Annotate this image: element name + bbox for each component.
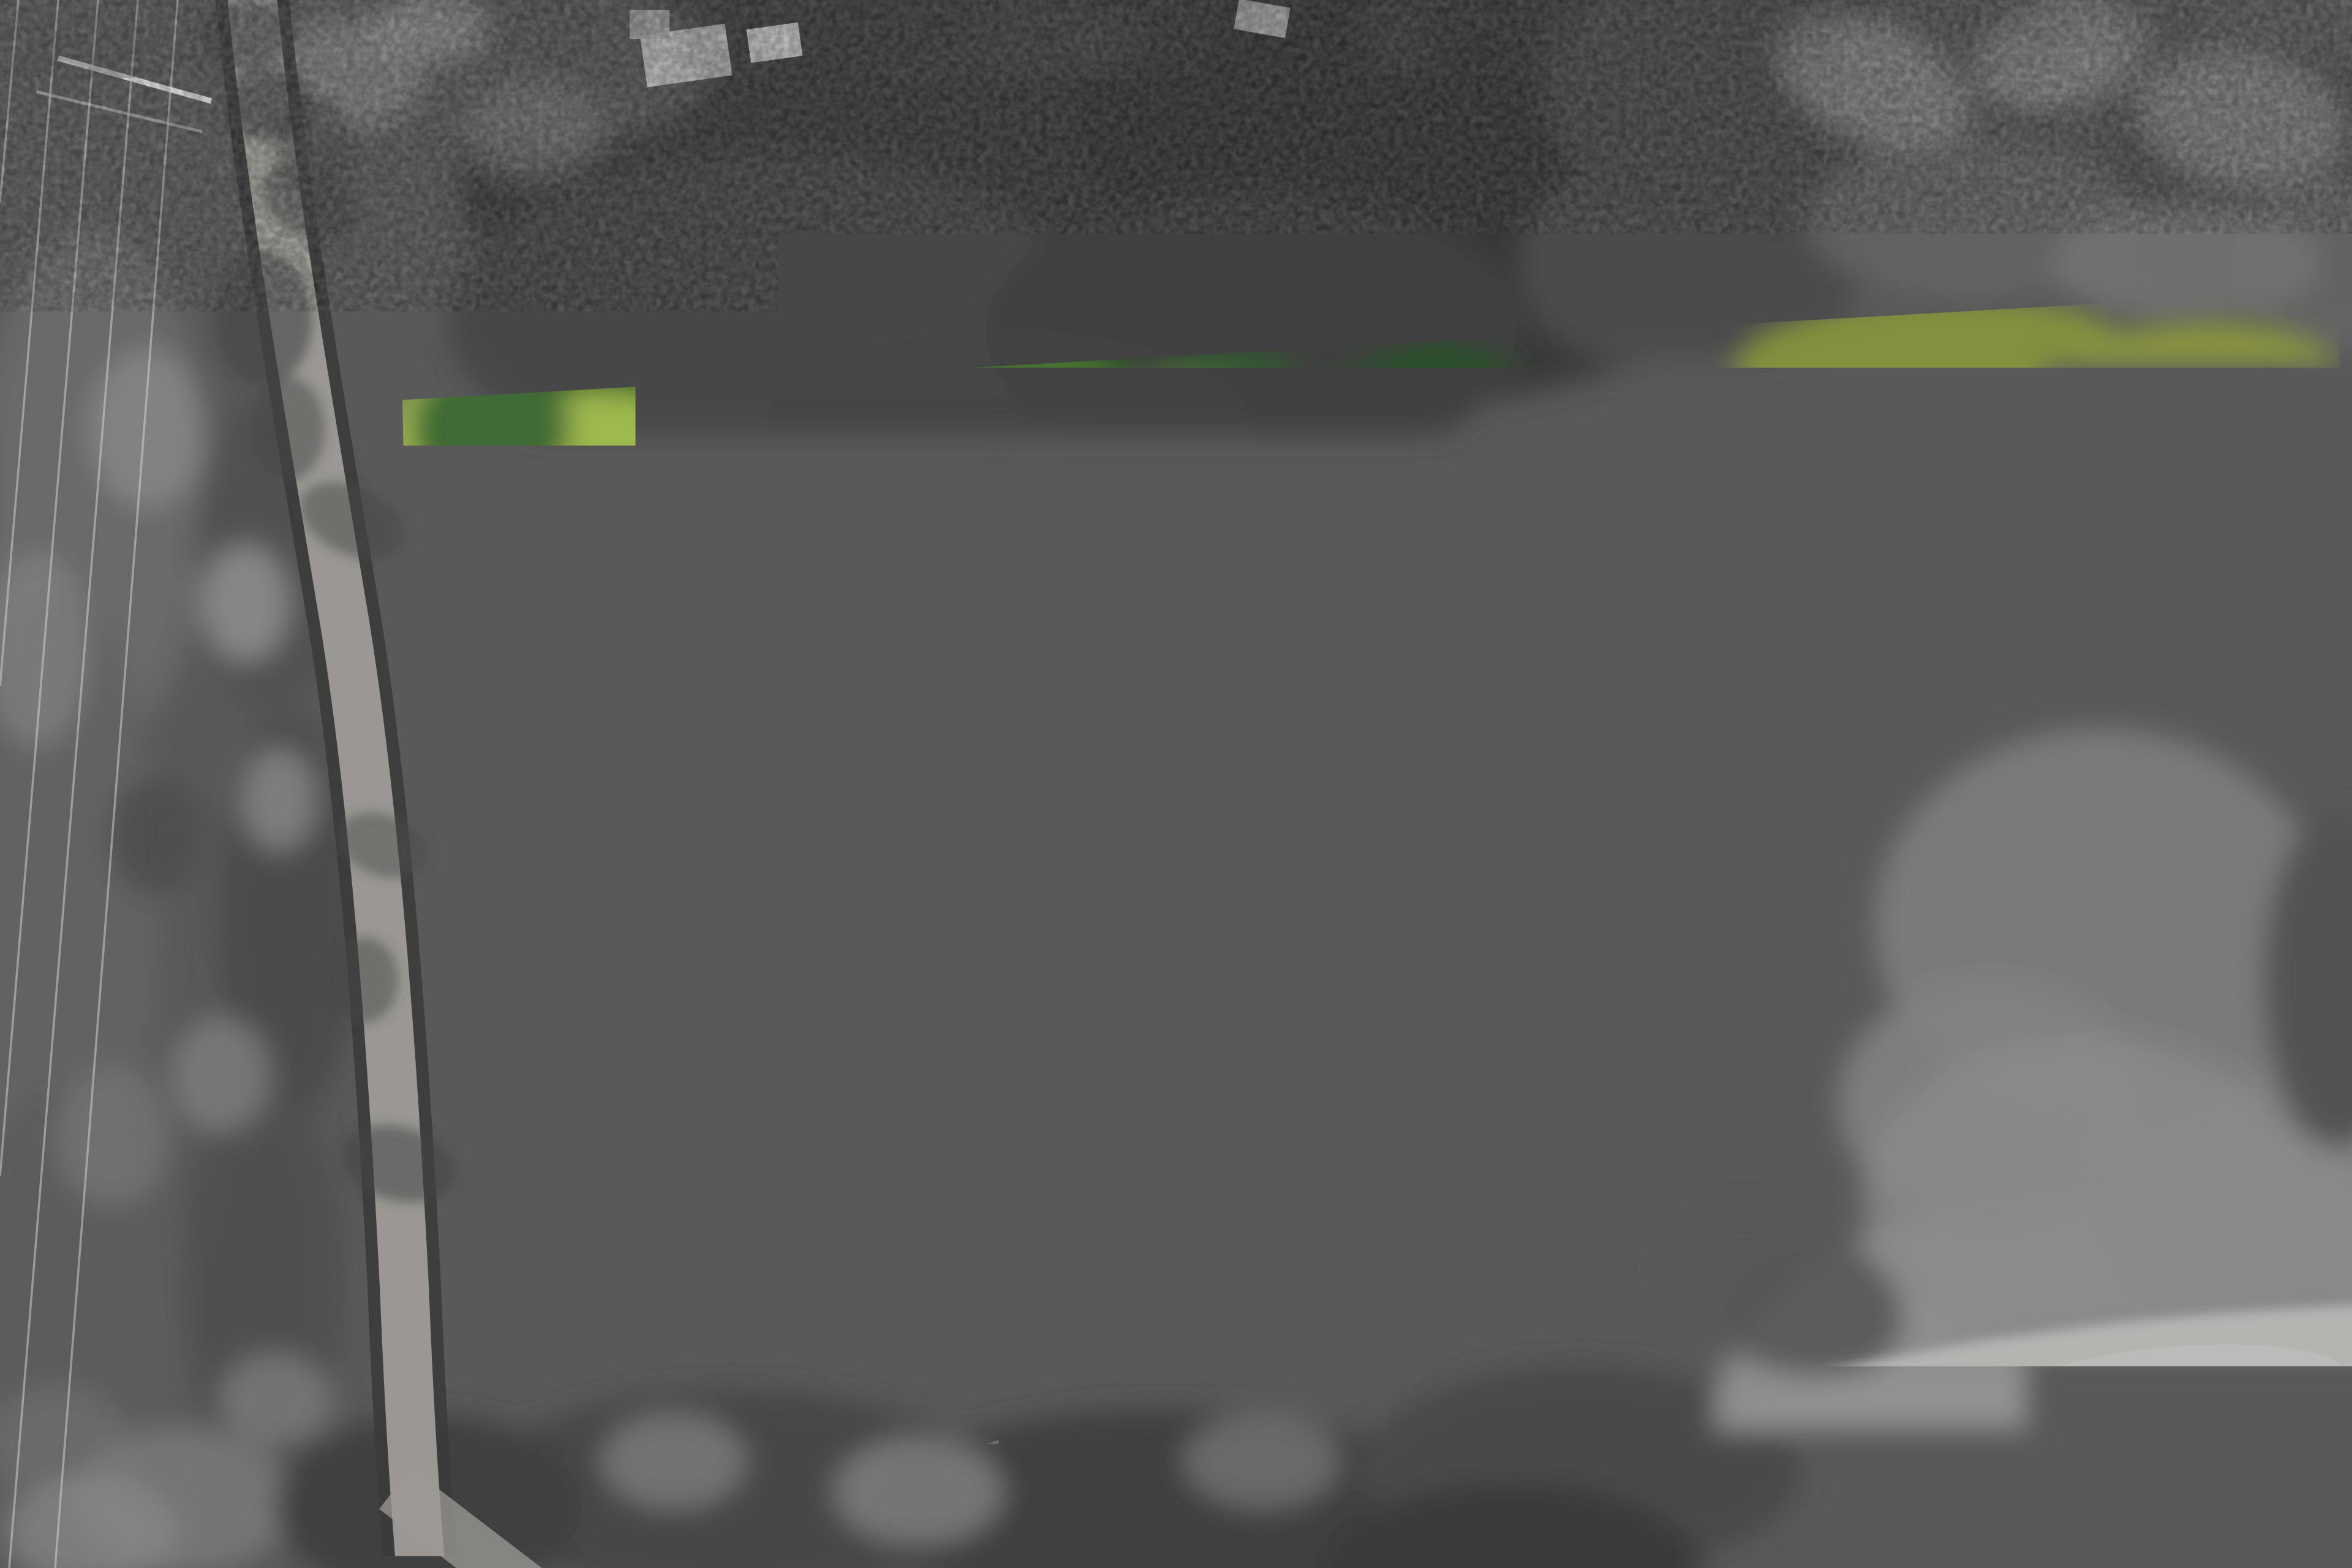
svg-text:BOUNDARY INDICATIVE ONLY: BOUNDARY INDICATIVE ONLY — [956, 1403, 1479, 1442]
